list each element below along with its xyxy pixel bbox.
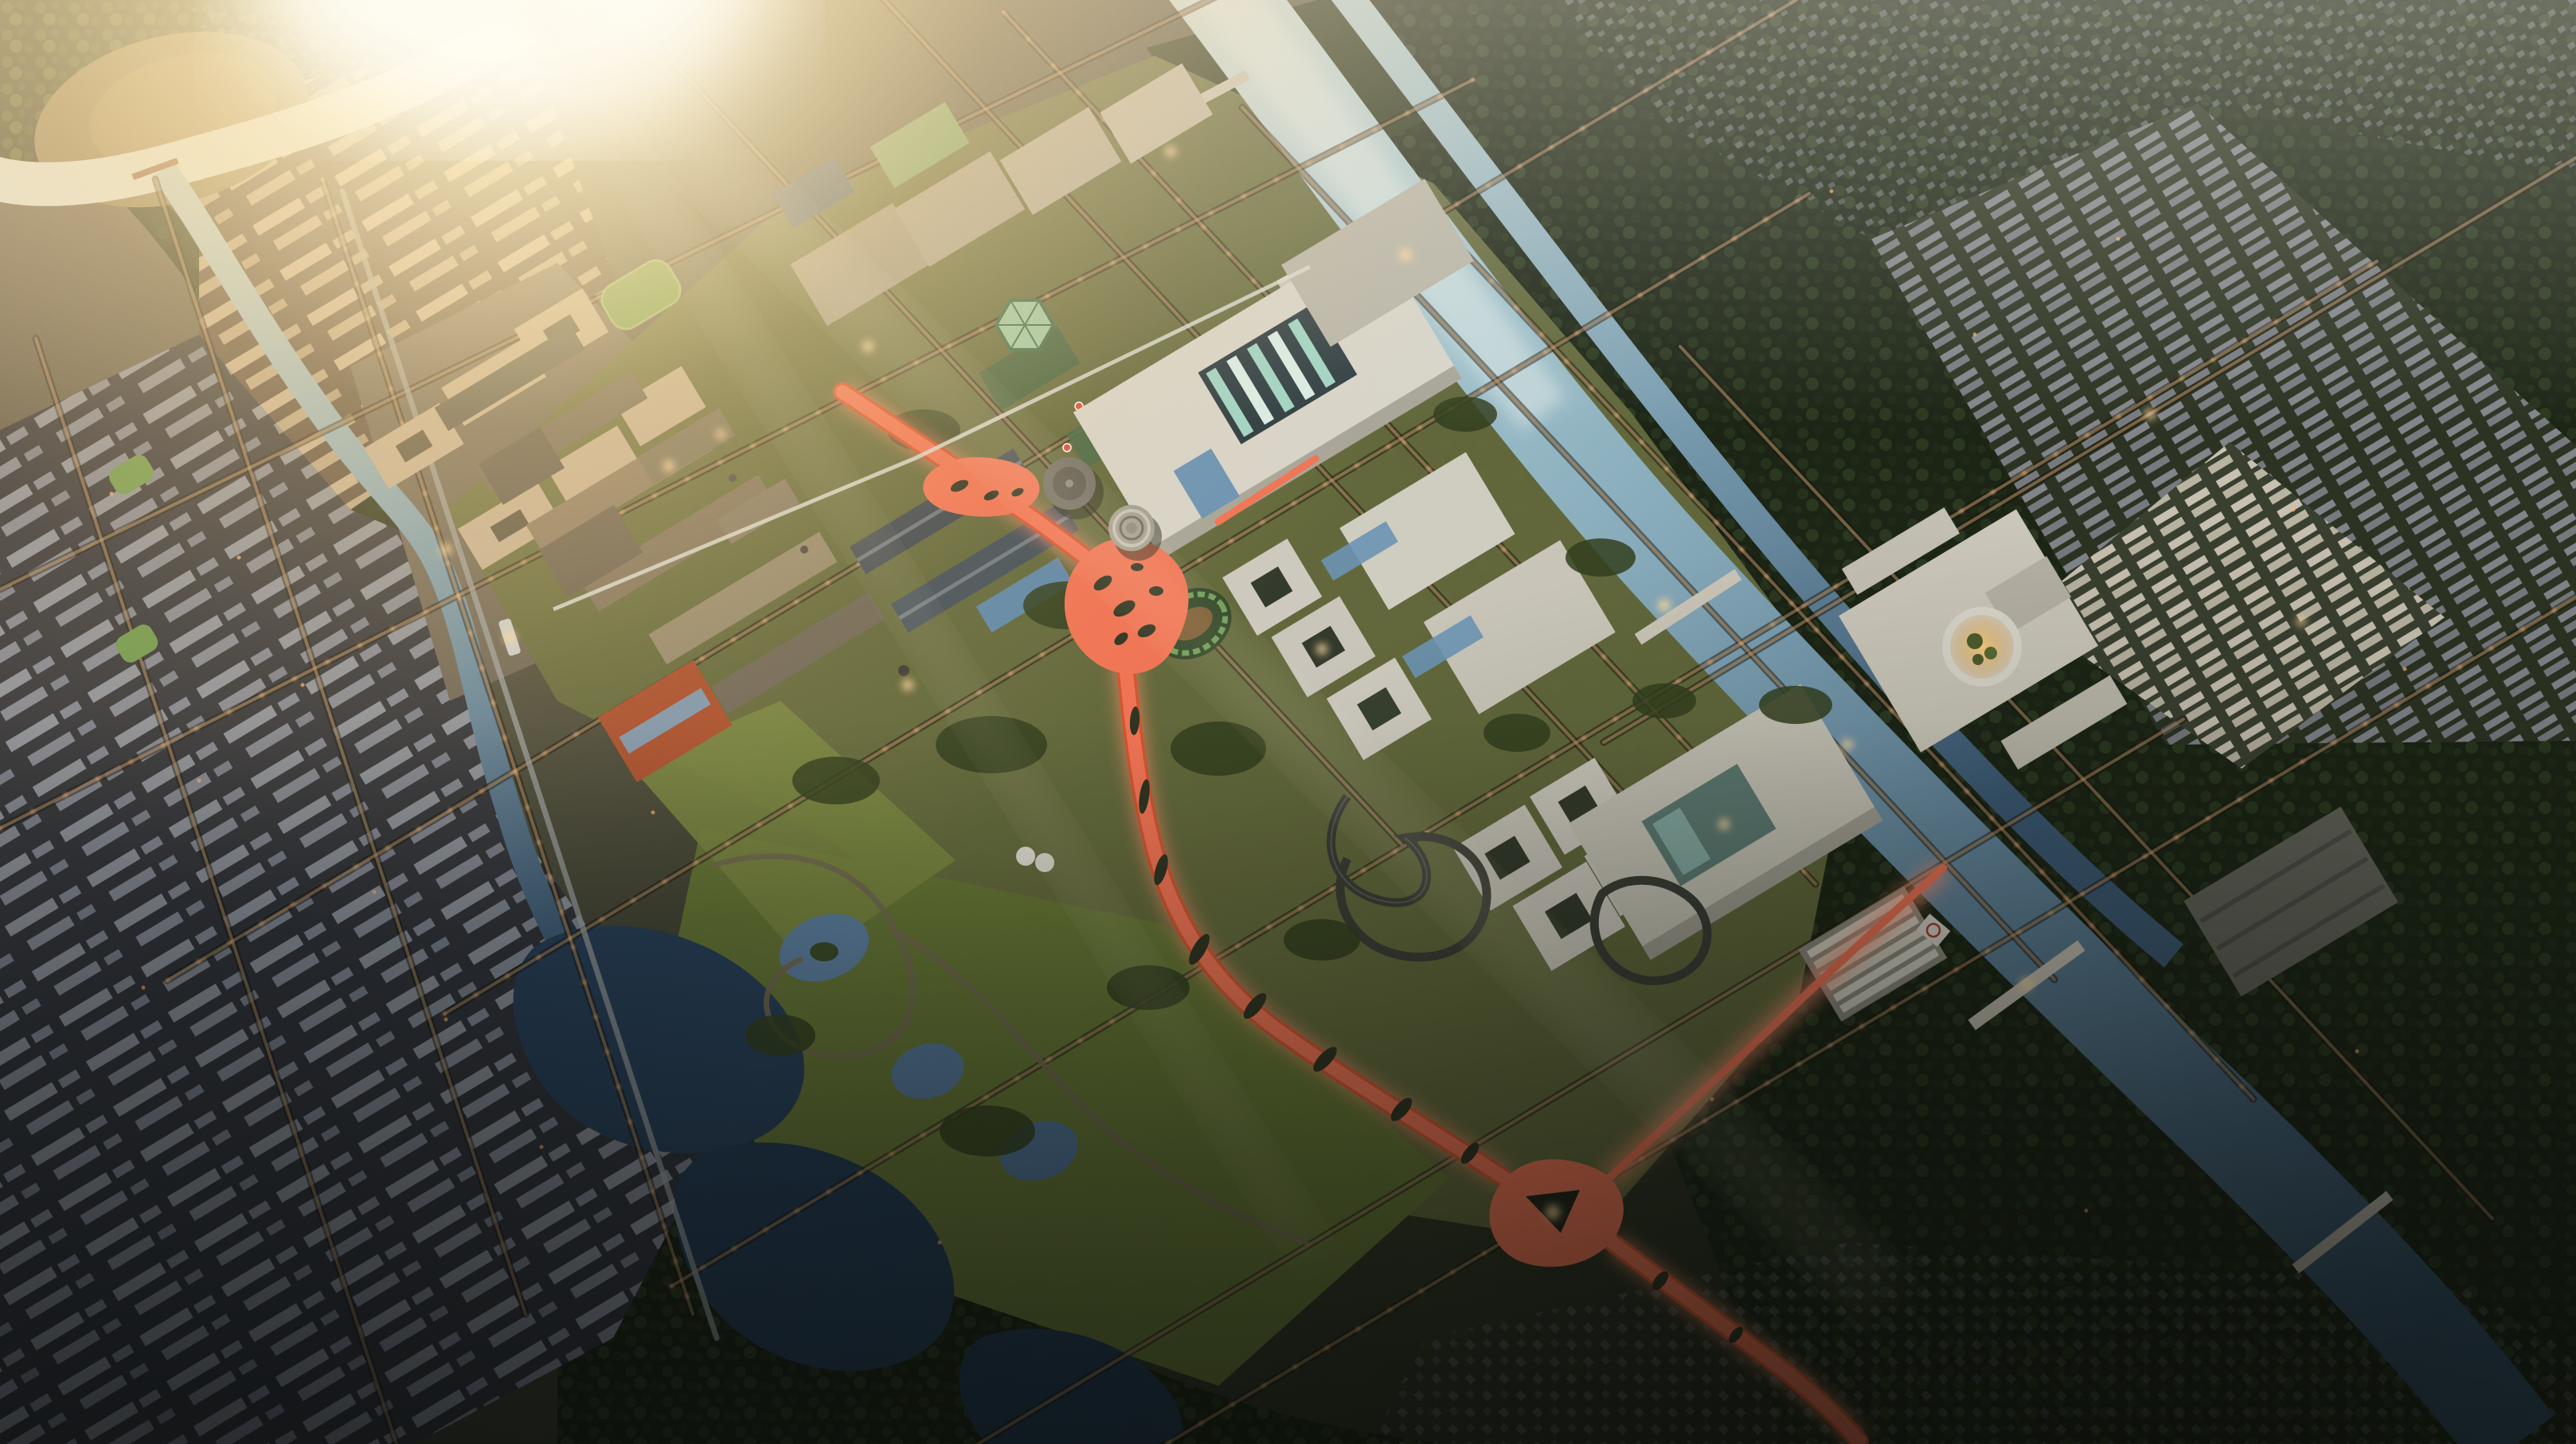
atmosphere xyxy=(0,0,2576,1444)
masterplan-rendering xyxy=(0,0,2576,1444)
corner-shade-bl xyxy=(0,0,2576,1444)
aerial-rendering-canvas xyxy=(0,0,2576,1444)
